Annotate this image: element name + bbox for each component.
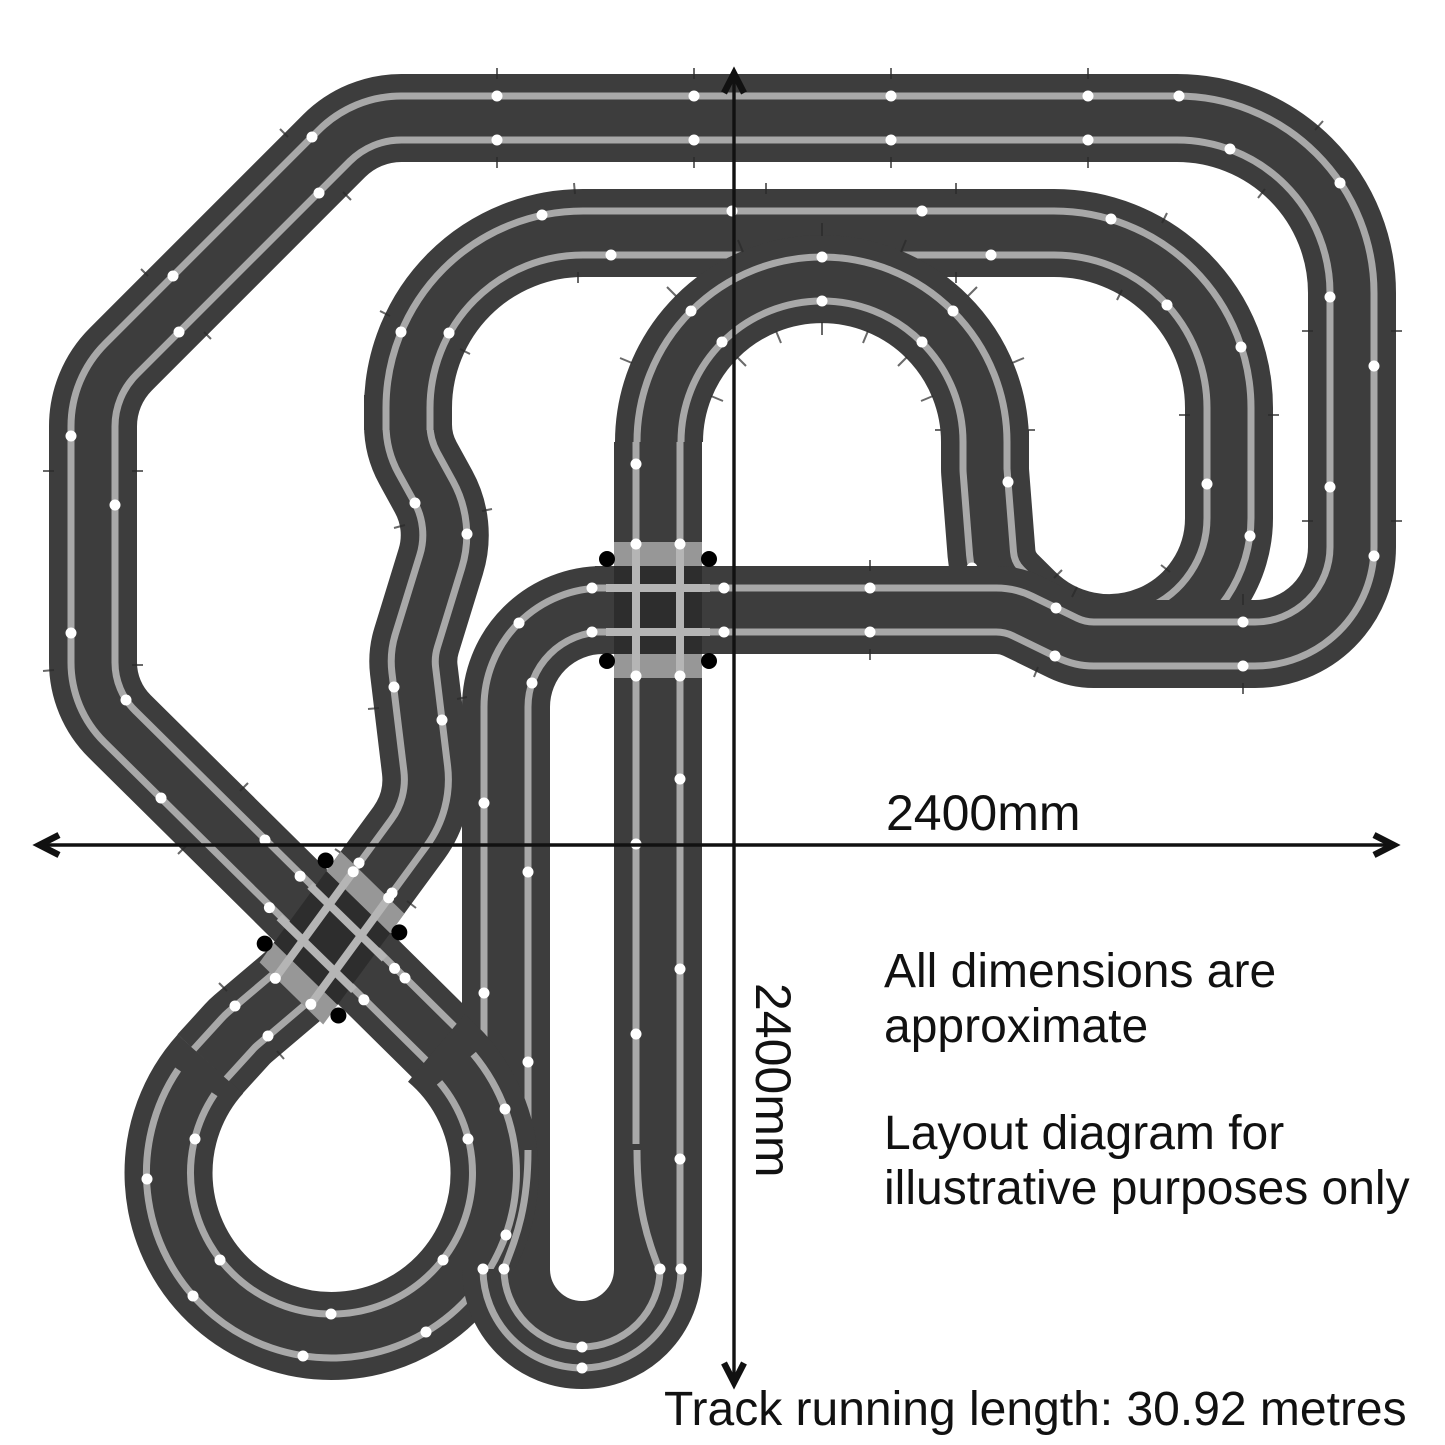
svg-text:illustrative purposes only: illustrative purposes only [884,1162,1410,1215]
svg-text:Layout diagram for: Layout diagram for [884,1107,1284,1160]
svg-text:2400mm: 2400mm [886,785,1081,841]
svg-text:Track running length: 30.92 me: Track running length: 30.92 metres [664,1383,1407,1436]
svg-text:approximate: approximate [884,1000,1148,1053]
svg-text:All dimensions are: All dimensions are [884,945,1276,998]
svg-text:2400mm: 2400mm [745,983,801,1178]
